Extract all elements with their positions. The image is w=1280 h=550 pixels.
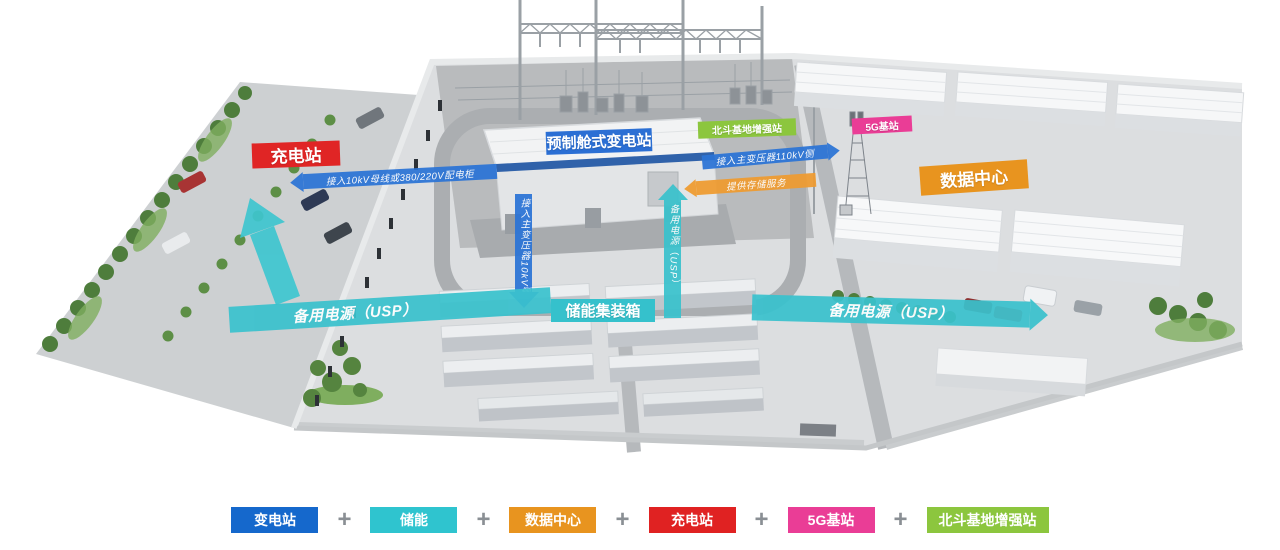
label-5g-station: 5G基站 <box>852 115 913 134</box>
legend-item-charging: 充电站 <box>649 507 736 533</box>
ups-right-text: 备用电源（USP） <box>828 299 954 323</box>
arrow-ups-vertical: 备用电源（USP） <box>664 200 681 318</box>
data-center-text: 数据中心 <box>939 163 1009 193</box>
label-charging-station: 充电站 <box>252 140 341 168</box>
charging-station-text: 充电站 <box>270 141 322 168</box>
site-gate <box>800 423 836 436</box>
10kv-feed-text: 接入主变压器10kV侧 <box>517 194 531 292</box>
legend-item-5g: 5G基站 <box>788 507 875 533</box>
legend-plus: + <box>337 510 351 530</box>
legend-plus: + <box>615 510 629 530</box>
legend-plus: + <box>755 510 769 530</box>
energy-storage-text: 储能集装箱 <box>565 300 640 321</box>
arrow-10kv-feed: 接入主变压器10kV侧 <box>515 194 532 292</box>
legend-plus: + <box>476 510 490 530</box>
legend-item-substation: 变电站 <box>231 507 318 533</box>
label-energy-storage: 储能集装箱 <box>551 299 655 322</box>
legend-item-data-center: 数据中心 <box>509 507 596 533</box>
beidou-station-text: 北斗基地增强站 <box>712 120 782 137</box>
label-substation: 预制舱式变电站 <box>546 128 653 155</box>
legend-item-beidou: 北斗基地增强站 <box>927 507 1049 533</box>
label-beidou-station: 北斗基地增强站 <box>698 118 797 138</box>
legend: 变电站 + 储能 + 数据中心 + 充电站 + 5G基站 + 北斗基地增强站 <box>0 507 1280 533</box>
5g-station-text: 5G基站 <box>865 117 899 134</box>
ups-vertical-text: 备用电源（USP） <box>666 200 680 318</box>
legend-plus: + <box>894 510 908 530</box>
substation-text: 预制舱式变电站 <box>546 129 652 154</box>
ups-left-text: 备用电源（USP） <box>292 298 418 327</box>
facility-illustration <box>0 0 1280 550</box>
legend-item-storage: 储能 <box>370 507 457 533</box>
infographic-page: 充电站 预制舱式变电站 数据中心 储能集装箱 5G基站 北斗基地增强站 接入10… <box>0 0 1280 550</box>
